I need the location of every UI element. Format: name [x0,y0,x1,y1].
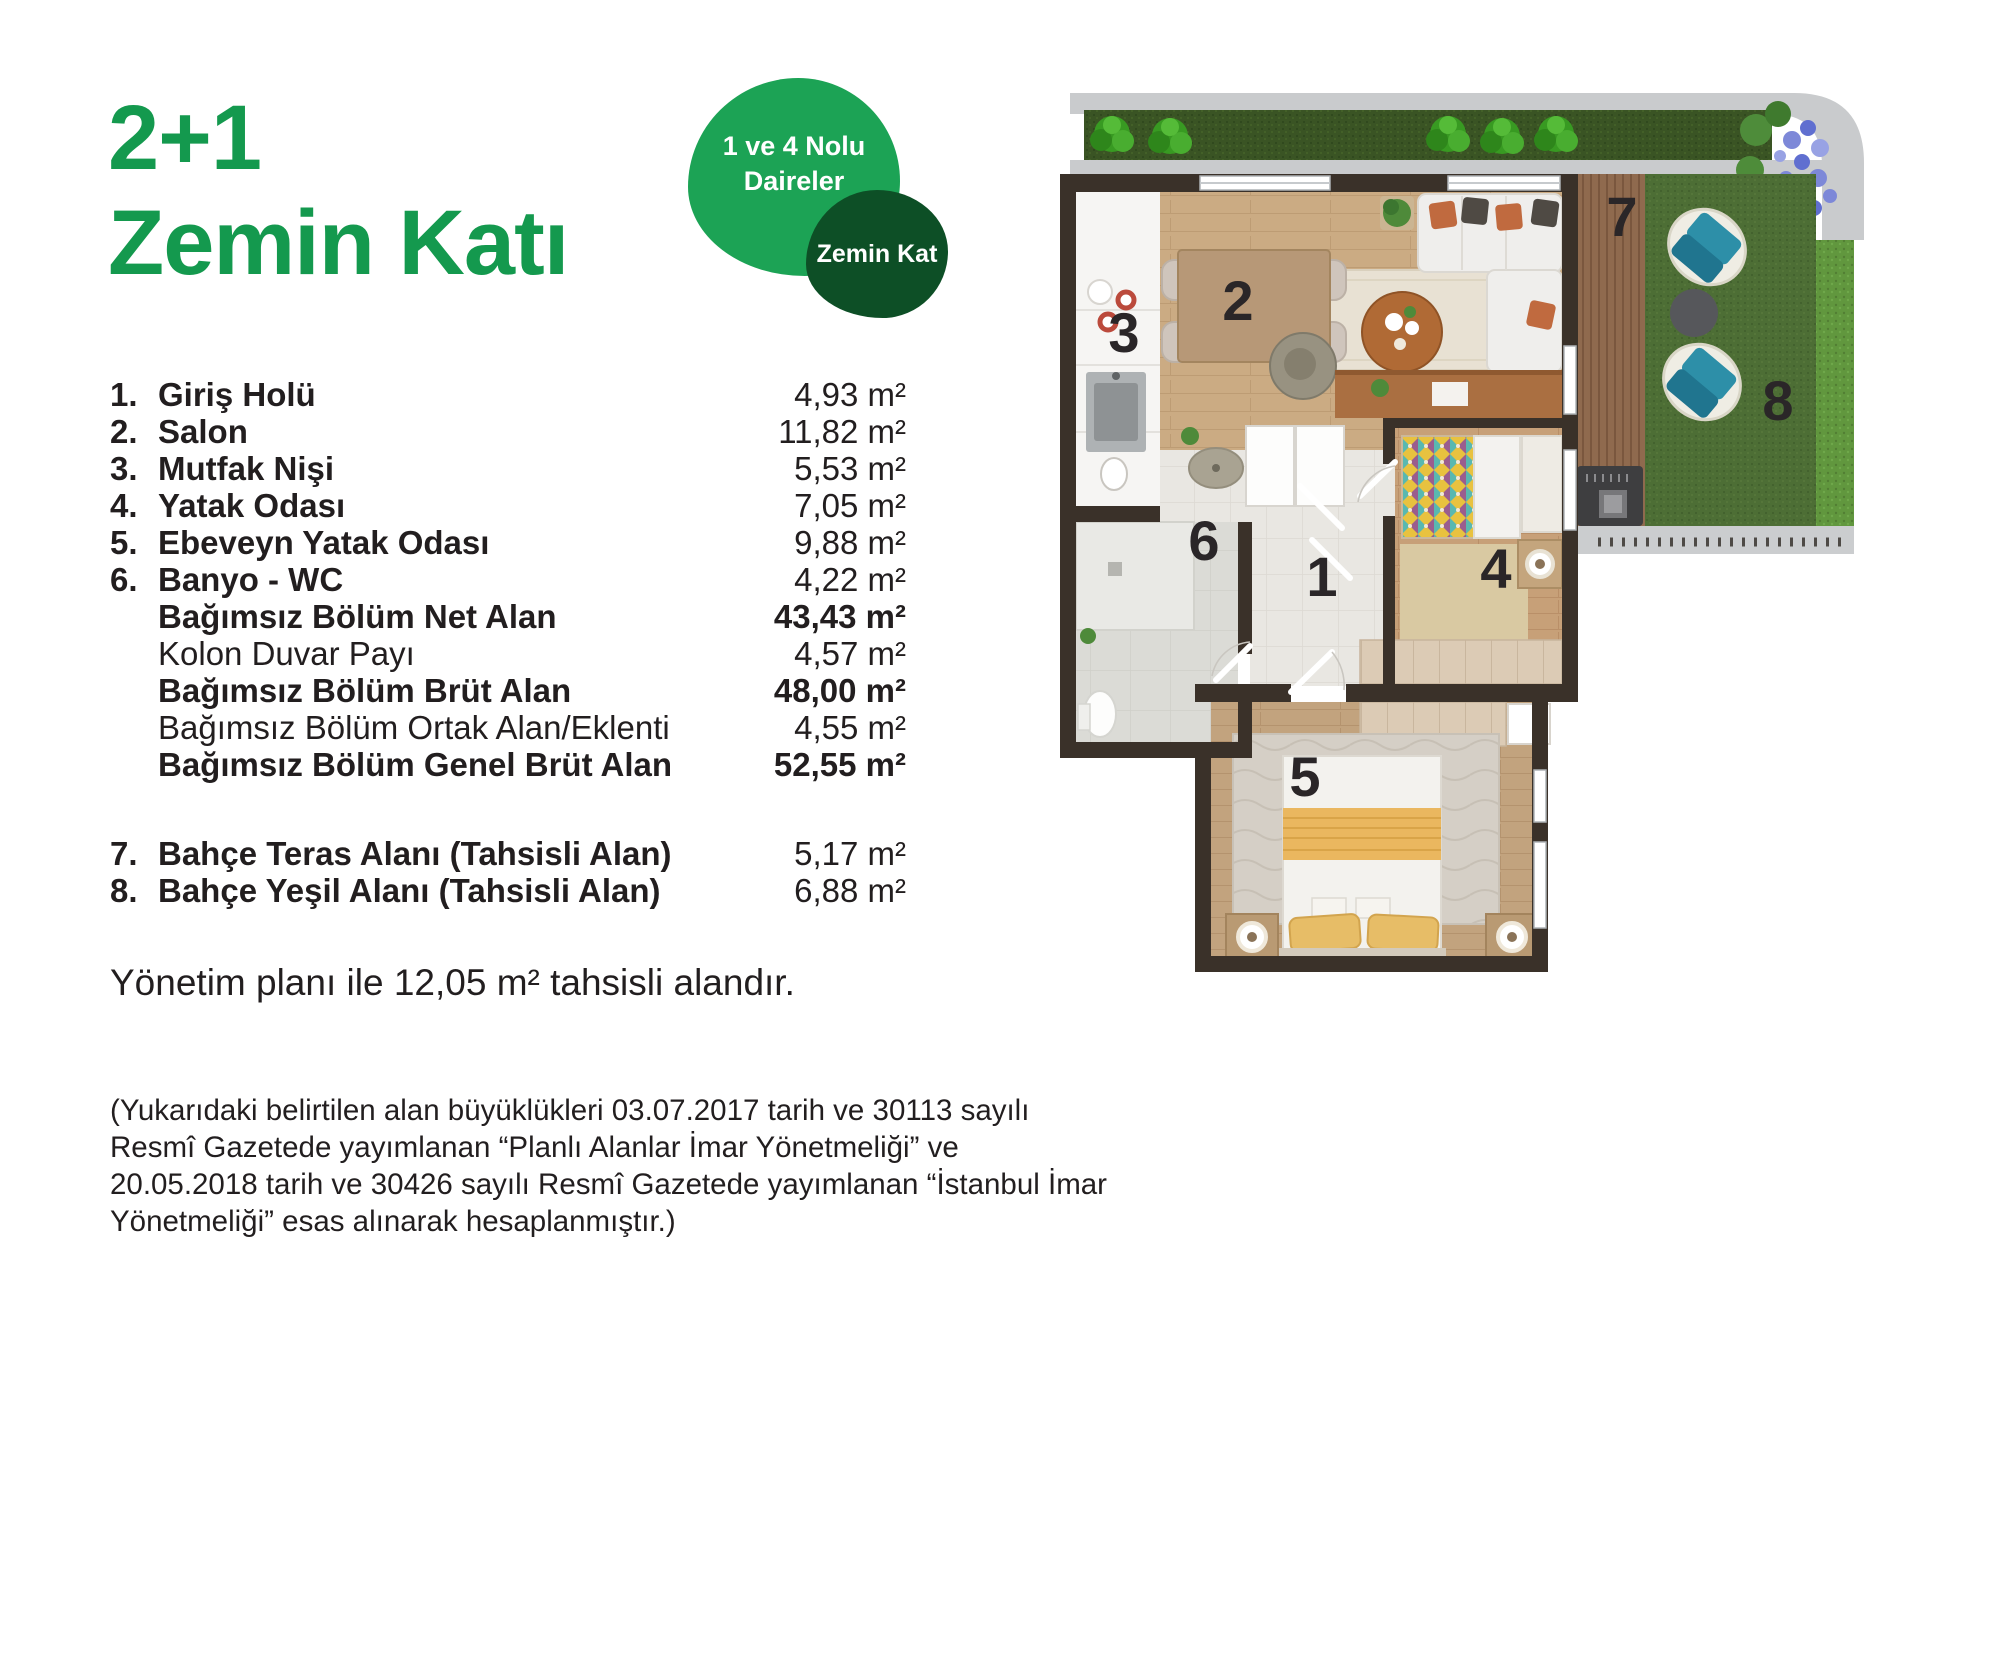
room-number-3: 3 [1108,301,1139,364]
area-row-label: Bağımsız Bölüm Net Alan [158,598,774,635]
area-row-value: 7,05 m² [794,487,906,524]
area-row-label: Ebeveyn Yatak Odası [158,524,794,561]
room-number-2: 2 [1222,269,1253,332]
area-row-label: Yatak Odası [158,487,794,524]
area-table: 1. Giriş Holü 4,93 m² 2. Salon 11,82 m² … [110,376,906,909]
area-row-value: 52,55 m² [774,746,906,783]
area-row: 3. Mutfak Nişi 5,53 m² [110,450,906,487]
area-row-label: Kolon Duvar Payı [158,635,794,672]
garden-side-table [1670,289,1718,337]
room-number-5: 5 [1289,745,1320,808]
room-number-7: 7 [1606,185,1637,248]
coffee-table [1362,292,1442,372]
area-row-label: Bağımsız Bölüm Brüt Alan [158,672,774,709]
area-row: 8. Bahçe Yeşil Alanı (Tahsisli Alan) 6,8… [110,872,906,909]
bedroom-nightstand [1518,540,1562,588]
title-line2: Zemin Katı [108,191,568,296]
room-number-8: 8 [1762,369,1793,432]
area-row-label: Bahçe Teras Alanı (Tahsisli Alan) [158,835,794,872]
area-row-number [110,635,158,672]
area-row-label: Banyo - WC [158,561,794,598]
disclaimer-line: Yönetmeliği” esas alınarak hesaplanmıştı… [110,1203,1107,1240]
area-row-label: Bağımsız Bölüm Genel Brüt Alan [158,746,774,783]
area-row: Kolon Duvar Payı 4,57 m² [110,635,906,672]
area-row-value: 5,17 m² [794,835,906,872]
garden-hedge-right [1816,240,1854,526]
room-number-4: 4 [1480,537,1511,600]
area-row-label: Mutfak Nişi [158,450,794,487]
plant-stand [1380,196,1414,230]
area-row-number [110,672,158,709]
disclaimer-line: (Yukarıdaki belirtilen alan büyüklükleri… [110,1092,1107,1129]
area-row: Bağımsız Bölüm Ortak Alan/Eklenti 4,55 m… [110,709,906,746]
page-title: 2+1 Zemin Katı [108,86,568,296]
area-row-number: 6. [110,561,158,598]
master-nightstand [1226,914,1278,960]
master-nightstand [1486,914,1538,960]
area-row-number [110,709,158,746]
garden-pavement [1575,526,1854,554]
area-row-number: 1. [110,376,158,413]
bedroom-bed [1402,436,1562,538]
floor-badge-label: Zemin Kat [817,240,938,269]
area-row-label: Bağımsız Bölüm Ortak Alan/Eklenti [158,709,794,746]
area-row: 5. Ebeveyn Yatak Odası 9,88 m² [110,524,906,561]
area-row-value: 43,43 m² [774,598,906,635]
area-row: Bağımsız Bölüm Genel Brüt Alan 52,55 m² [110,746,906,783]
console-desk [1335,370,1562,418]
unit-badge-line1: 1 ve 4 Nolu [723,129,866,164]
area-row-value: 11,82 m² [778,413,906,450]
area-row-value: 6,88 m² [794,872,906,909]
area-row: 7. Bahçe Teras Alanı (Tahsisli Alan) 5,1… [110,835,906,872]
area-row: Bağımsız Bölüm Brüt Alan 48,00 m² [110,672,906,709]
area-row-number [110,746,158,783]
area-row: 2. Salon 11,82 m² [110,413,906,450]
area-row-value: 5,53 m² [794,450,906,487]
unit-badge-line2: Daireler [744,164,845,199]
floor-plan: 1 2 3 4 5 6 7 8 [1050,70,1880,980]
disclaimer-line: 20.05.2018 tarih ve 30426 sayılı Resmî G… [110,1166,1107,1203]
legal-disclaimer: (Yukarıdaki belirtilen alan büyüklükleri… [110,1092,1107,1240]
brochure-page: 2+1 Zemin Katı 1 ve 4 Nolu Daireler Zemi… [0,0,2000,1676]
area-row-number: 8. [110,872,158,909]
area-row-number: 3. [110,450,158,487]
area-row-label: Giriş Holü [158,376,794,413]
area-row-label: Salon [158,413,778,450]
area-row-number [110,598,158,635]
area-row: Bağımsız Bölüm Net Alan 43,43 m² [110,598,906,635]
allocation-note: Yönetim planı ile 12,05 m² tahsisli alan… [110,962,795,1004]
area-row-value: 4,93 m² [794,376,906,413]
area-row-number: 7. [110,835,158,872]
outdoor-fireplace [1577,466,1643,526]
area-row: 6. Banyo - WC 4,22 m² [110,561,906,598]
armchair [1270,333,1336,399]
area-row: 1. Giriş Holü 4,93 m² [110,376,906,413]
area-row-value: 4,55 m² [794,709,906,746]
area-row-number: 2. [110,413,158,450]
room-number-1: 1 [1306,545,1337,608]
room-number-6: 6 [1188,509,1219,572]
area-row-value: 9,88 m² [794,524,906,561]
area-row-number: 4. [110,487,158,524]
area-row-value: 4,22 m² [794,561,906,598]
title-line1: 2+1 [108,86,568,191]
area-row-label: Bahçe Yeşil Alanı (Tahsisli Alan) [158,872,794,909]
area-row-value: 4,57 m² [794,635,906,672]
area-row-number: 5. [110,524,158,561]
area-row: 4. Yatak Odası 7,05 m² [110,487,906,524]
disclaimer-line: Resmî Gazetede yayımlanan “Planlı Alanla… [110,1129,1107,1166]
area-row-value: 48,00 m² [774,672,906,709]
